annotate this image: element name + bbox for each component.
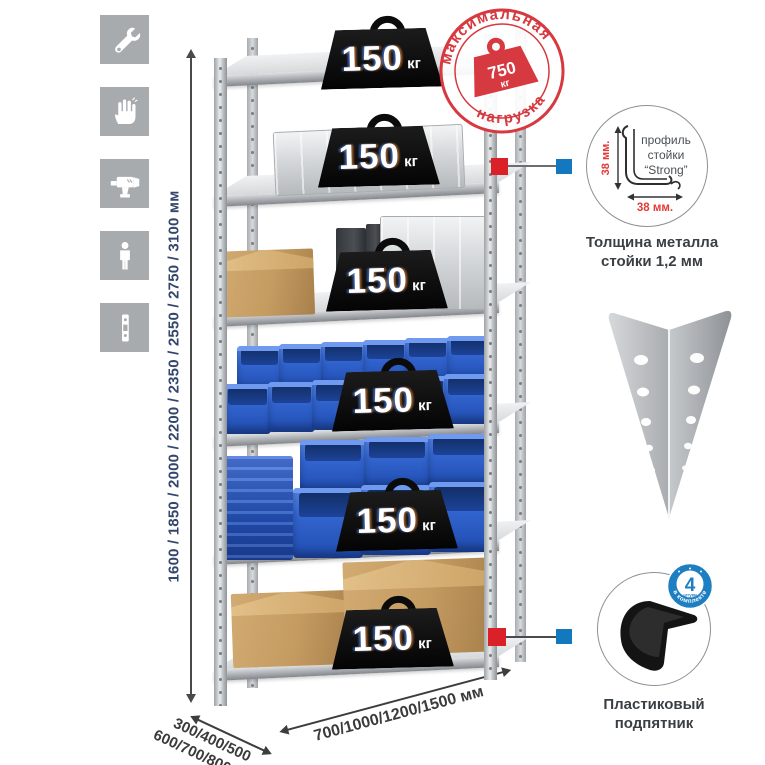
shelf-load-weight: 150кг bbox=[330, 356, 454, 431]
load-value: 150 bbox=[352, 620, 414, 657]
load-unit: кг bbox=[404, 153, 418, 170]
callout-marker-red bbox=[488, 628, 506, 646]
profile-dim-vertical: 38 мм. bbox=[600, 141, 612, 176]
angle-post-image bbox=[595, 300, 745, 535]
callout-line bbox=[506, 165, 558, 167]
plastic-crate bbox=[218, 456, 293, 560]
load-value: 150 bbox=[338, 138, 400, 175]
badge-small-text: штуки bbox=[683, 593, 697, 598]
load-unit: кг bbox=[407, 55, 421, 72]
shelf-load-weight: 150кг bbox=[324, 236, 448, 311]
callout-marker-red bbox=[491, 158, 508, 175]
load-unit: кг bbox=[418, 397, 432, 414]
foot-caption-line1: Пластиковый bbox=[584, 696, 724, 715]
callout-marker-blue bbox=[556, 629, 572, 644]
shelf-load-weight: 150кг bbox=[316, 112, 440, 187]
plastic-bin bbox=[268, 382, 315, 432]
quantity-badge: 4 штуки в комплекте bbox=[666, 562, 714, 615]
perforated-strip-icon bbox=[100, 303, 149, 352]
gloves-icon bbox=[100, 87, 149, 136]
load-value: 150 bbox=[352, 382, 414, 419]
profile-caption-line1: Толщина металла bbox=[572, 234, 732, 253]
post-profile-detail-circle: 38 мм. 38 мм. профиль стойки “Strong” bbox=[586, 105, 708, 227]
wrench-icon bbox=[100, 15, 149, 64]
foot-caption-line2: подпятник bbox=[584, 715, 724, 734]
height-dimension-label: 1600 / 1850 / 2000 / 2200 / 2350 / 2550 … bbox=[166, 147, 183, 627]
load-unit: кг bbox=[418, 635, 432, 652]
profile-label-line1: профиль bbox=[641, 133, 691, 147]
load-unit: кг bbox=[412, 277, 426, 294]
load-value: 150 bbox=[346, 262, 408, 299]
person-icon bbox=[100, 231, 149, 280]
load-value: 150 bbox=[356, 502, 418, 539]
drill-icon bbox=[100, 159, 149, 208]
profile-dim-horizontal: 38 мм. bbox=[637, 202, 673, 214]
load-value: 150 bbox=[341, 40, 403, 77]
plastic-bin bbox=[224, 384, 271, 434]
shelf-load-weight: 150кг bbox=[330, 594, 454, 669]
width-dimension: 700/1000/1200/1500 мм bbox=[283, 670, 514, 754]
height-dimension-line bbox=[190, 52, 192, 700]
arrow-down-icon bbox=[186, 694, 196, 708]
rack-front-left-post bbox=[214, 58, 227, 706]
depth-dimension-label: 300/400/500 600/700/800 мм bbox=[140, 705, 275, 765]
shelving-rack-infographic: 1600 / 1850 / 2000 / 2200 / 2350 / 2550 … bbox=[0, 0, 765, 765]
arrow-up-icon bbox=[186, 44, 196, 58]
cardboard-box bbox=[219, 248, 315, 317]
shelf-load-weight: 150кг bbox=[334, 476, 458, 551]
callout-line bbox=[504, 636, 558, 638]
callout-marker-blue bbox=[556, 159, 572, 174]
profile-label-line3: “Strong” bbox=[644, 163, 687, 177]
profile-caption: Толщина металла стойки 1,2 мм bbox=[572, 234, 732, 272]
load-unit: кг bbox=[422, 517, 436, 534]
depth-dimension: 300/400/500 600/700/800 мм bbox=[140, 700, 278, 765]
profile-label-line2: стойки bbox=[648, 148, 685, 162]
width-dimension-label: 700/1000/1200/1500 мм bbox=[284, 675, 513, 754]
profile-caption-line2: стойки 1,2 мм bbox=[572, 253, 732, 272]
foot-caption: Пластиковый подпятник bbox=[584, 696, 724, 734]
arrow-right-icon bbox=[501, 664, 517, 677]
